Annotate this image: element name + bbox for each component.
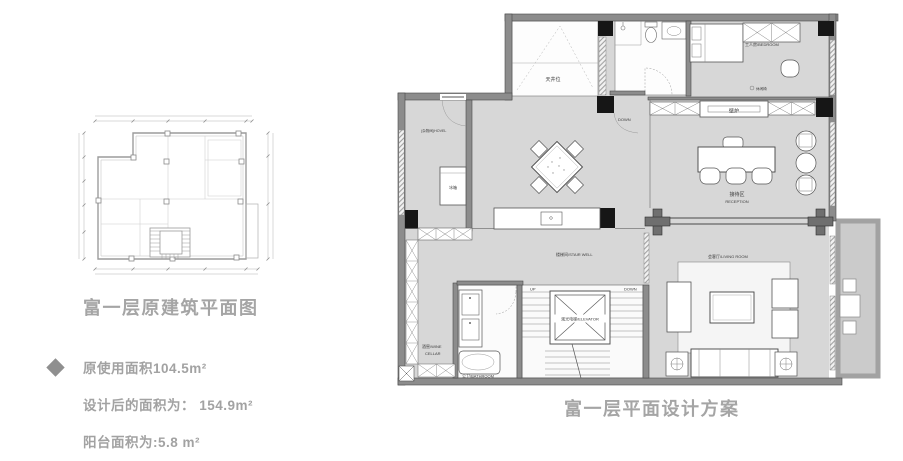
wine-cellar-label-1: 酒窖/WINE: [422, 343, 442, 349]
living-room: 会客厅/LIVING ROOM: [666, 253, 798, 377]
original-plan-title: 富一层原建筑平面图: [83, 294, 259, 320]
fireplace-label: 壁炉: [729, 108, 739, 115]
armchair: [667, 282, 691, 332]
diamond-bullet-icon: [46, 358, 64, 376]
light-well-label: 天井位: [545, 76, 560, 83]
light-well: 天井位: [512, 21, 598, 96]
wardrobe: [743, 23, 800, 42]
fireplace: 壁炉: [700, 101, 768, 117]
cabinet-row: [418, 228, 472, 240]
coffee-table: [710, 292, 754, 323]
stair-well-label: 楼梯间/STAIR WELL: [556, 251, 593, 257]
elevator: 观光电梯/ELEVATOR: [550, 291, 610, 344]
sink-icon: [662, 22, 686, 39]
original-area-text: 原使用面积104.5m²: [83, 357, 207, 377]
slide: 富一层原建筑平面图 原使用面积104.5m² 设计后的面积为： 154.9m² …: [0, 0, 903, 461]
leisure-chair: [781, 60, 799, 77]
top-bathroom: [615, 21, 688, 95]
fireplace-wall: 壁炉: [650, 101, 815, 117]
original-plan-stair: [150, 228, 190, 259]
armchair: [772, 310, 798, 338]
round-chairs: [796, 131, 816, 195]
stairwell: 观光电梯/ELEVATOR UP DOWN: [522, 285, 643, 378]
design-floor-plan: 天井位: [390, 0, 903, 392]
bedroom-label: 工人房/BEDROOM: [745, 41, 779, 47]
original-floor-plan: [70, 110, 298, 294]
bathtub: [459, 351, 500, 374]
chair: [726, 168, 746, 184]
balcony: [838, 221, 878, 376]
designed-area-text: 设计后的面积为： 154.9m²: [83, 394, 253, 414]
chair: [752, 168, 772, 184]
down-top-label: DOWN: [618, 117, 631, 122]
down-label: DOWN: [624, 287, 637, 292]
side-table: [666, 352, 688, 376]
fridge-label: 冰箱: [449, 184, 457, 190]
storage-label: (杂物间)HOVEL: [421, 128, 446, 133]
elevator-label: 观光电梯/ELEVATOR: [561, 316, 599, 322]
sofa: [691, 349, 778, 377]
toilet-icon: [645, 22, 657, 43]
fridge: 冰箱: [440, 167, 466, 205]
living-room-label: 会客厅/LIVING ROOM: [708, 253, 748, 259]
reception-label-en: RECEPTION: [725, 199, 748, 204]
island-counter: [494, 208, 600, 229]
leisure-chair-label: 休闲椅: [756, 86, 767, 91]
up-label: UP: [530, 287, 536, 292]
dining-set: [531, 141, 584, 194]
armchair: [772, 279, 798, 308]
guest-bathroom: 公卫/BATHROOM: [457, 285, 517, 379]
wine-cellar-label-2: CELLAR: [425, 351, 441, 356]
bed: [690, 24, 743, 62]
reception-label-cn: 接待区: [729, 191, 744, 198]
chair: [700, 168, 720, 184]
side-table: [775, 352, 797, 376]
balcony-area-text: 阳台面积为:5.8 m²: [83, 431, 200, 451]
design-plan-title: 富一层平面设计方案: [564, 395, 740, 421]
